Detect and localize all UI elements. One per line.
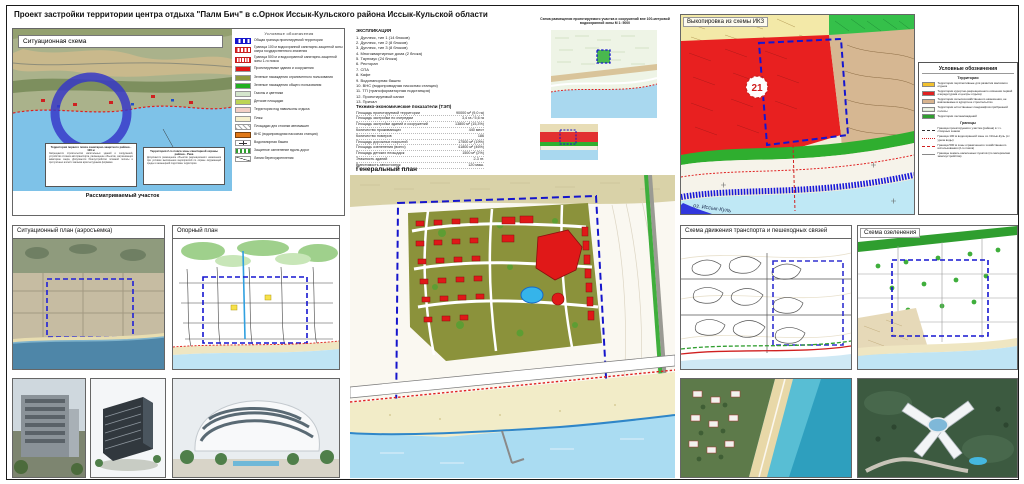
- legend-label: Газоны и цветники: [254, 92, 283, 96]
- ikz-territories-list: Территории перспективные для развития ма…: [922, 82, 1014, 120]
- tep-value: 2-3 эт.: [474, 157, 484, 162]
- ikz-border-label: Граница проектируемого участка (района) …: [938, 127, 1015, 133]
- legend-swatch: [235, 75, 251, 81]
- legend-swatch: [235, 91, 251, 97]
- ikz-territory-item: Территории сельскохозяйственного назначе…: [922, 98, 1014, 104]
- situ-legend-list: Общая граница проектируемой территорииГр…: [235, 38, 343, 162]
- ikz-border-label: Граница 100 м водоохранной зоны оз. Иссы…: [938, 135, 1015, 141]
- genplan-title: Генеральный план: [356, 166, 417, 173]
- genplan-panel: [350, 175, 675, 478]
- genplan-map: [350, 175, 675, 478]
- tep-title: Технико-экономические показатели (ТЭП): [356, 104, 484, 109]
- render-building-3d: [90, 378, 166, 478]
- drawing-sheet: Проект застройки территории центра отдых…: [0, 0, 1024, 484]
- tep-value: 41800 м² (46%): [458, 145, 484, 150]
- legend-label: Зеленые насаждения ограниченного пользов…: [254, 76, 333, 80]
- tep-value: 17500 м² (19%): [458, 140, 484, 145]
- tep-value: 120 маш.: [468, 163, 484, 168]
- tep-label: Площадь дорожных покрытий: [356, 140, 458, 145]
- tep-label: Площадь застройки по очередям: [356, 116, 462, 121]
- ikz-territory-swatch: [922, 99, 935, 104]
- legend-item: Пляж: [235, 116, 343, 122]
- ikz-territory-swatch: [922, 107, 935, 112]
- legend-swatch: [235, 156, 251, 162]
- tep-label: Количество номеров: [356, 134, 478, 139]
- legend-swatch: [235, 116, 251, 122]
- tep-block: Технико-экономические показатели (ТЭП) П…: [356, 104, 484, 169]
- ikz-map: 21 оз. Иссык-Куль: [681, 15, 914, 214]
- ikz-territories-subtitle: Территории: [922, 76, 1014, 80]
- legend-item: Детские площадки: [235, 99, 343, 105]
- placement-scheme-title: Схема размещения проектируемого участка …: [535, 18, 675, 26]
- ikz-border-item: Граница 100 м водоохранной зоны оз. Иссы…: [922, 135, 1014, 141]
- oporny-plan-title: Опорный план: [173, 226, 339, 239]
- tep-value: 1500 м² (2%): [462, 151, 484, 156]
- note-body: Допускается размещение объектов рекреаци…: [147, 157, 221, 166]
- legend-swatch: [235, 38, 251, 44]
- ikz-territory-swatch: [922, 114, 935, 119]
- ikz-border-item: Граница 500 м зоны ограниченного хозяйст…: [922, 144, 1014, 150]
- legend-item: Граница 500 м и водоохранной санитарно-з…: [235, 56, 343, 64]
- legend-item: Граница 100 м водоохранной санитарно-защ…: [235, 46, 343, 54]
- ikz-panel: Выкопировка из схемы ИКЗ: [680, 14, 915, 215]
- legend-item: Общая граница проектируемой территории: [235, 38, 343, 44]
- ikz-territory-item: Территории перспективные для развития ма…: [922, 82, 1014, 88]
- legend-item: ВНС (водопроводная насосная станция): [235, 132, 343, 138]
- site-caption: Рассматриваемый участок: [13, 193, 232, 199]
- transport-scheme-panel: Схема движения транспорта и пешеходных с…: [680, 225, 852, 370]
- legend-item: Защитное озеленение вдоль дорог: [235, 148, 343, 154]
- ikz-territory-label: Территории курортно-рекреационного освое…: [938, 90, 1015, 96]
- legend-swatch: [235, 66, 251, 72]
- ikz-border-swatch: [922, 146, 935, 147]
- legend-label: Площадки для стоянки автомашин: [254, 125, 309, 129]
- facade-photo-image: [13, 379, 85, 477]
- ikz-territory-item: Территории лесонасаждений: [922, 114, 1014, 119]
- ikz-border-swatch: [922, 138, 935, 139]
- legend-label: Территория под павильоны отдыха: [254, 108, 309, 112]
- tep-value: 90000 м² (9,0 га): [456, 111, 484, 116]
- oporny-plan-panel: Опорный план: [172, 225, 340, 370]
- tep-value: 3,4 га / 5,6 га: [462, 116, 484, 121]
- ikz-border-item: Граница проектируемого участка (района) …: [922, 127, 1014, 133]
- aero-plan-title: Ситуационный план (аэросъемка): [13, 226, 164, 239]
- placement-scheme-map: [551, 30, 657, 118]
- ikz-territory-item: Территории естественных ландшафтов прибр…: [922, 106, 1014, 112]
- greenery-scheme-title: Схема озеленения: [860, 228, 920, 238]
- tep-value: 13800 м² (15,3%): [455, 122, 484, 127]
- render-aerial-resort: [680, 378, 852, 478]
- situational-scheme-panel: Ситуационная схема Территория первого по…: [12, 28, 345, 216]
- legend-swatch: [235, 83, 251, 89]
- aero-plan-panel: Ситуационный план (аэросъемка): [12, 225, 165, 370]
- ikz-territory-swatch: [922, 82, 935, 87]
- ikz-title: Выкопировка из схемы ИКЗ: [683, 17, 768, 27]
- legend-label: Водонапорная башня: [254, 141, 288, 145]
- legend-swatch: [235, 148, 251, 154]
- legend-item: Линия берегоукрепления: [235, 156, 343, 162]
- ikz-territory-label: Территории естественных ландшафтов прибр…: [938, 106, 1015, 112]
- legend-swatch: [235, 99, 251, 105]
- explication-block: ЭКСПЛИКАЦИЯ 1. Дуплекс, тип 1 (14 блоков…: [356, 28, 474, 105]
- ikz-border-label: Граница 500 м зоны ограниченного хозяйст…: [938, 144, 1015, 150]
- legend-label: ВНС (водопроводная насосная станция): [254, 133, 318, 137]
- legend-swatch: [235, 47, 251, 53]
- ikz-border-swatch: [922, 154, 935, 155]
- aerial-hotel-image: [858, 379, 1017, 477]
- greenery-scheme-map: [858, 226, 1017, 369]
- legend-label: Зеленые насаждения общего пользования: [254, 84, 321, 88]
- greenery-scheme-panel: Схема озеленения: [857, 225, 1018, 370]
- ikz-territory-label: Территории перспективные для развития ма…: [938, 82, 1015, 88]
- oporny-plan-map: [173, 239, 339, 369]
- legend-label: Общая граница проектируемой территории: [254, 39, 323, 43]
- tep-label: Площадь детских площадок: [356, 151, 462, 156]
- aerial-resort-image: [681, 379, 851, 477]
- tep-label: Площадь проектируемой территории: [356, 111, 456, 116]
- situational-legend: Условные обозначения Общая граница проек…: [235, 31, 343, 165]
- ikz-territory-label: Территории сельскохозяйственного назначе…: [938, 98, 1015, 104]
- legend-swatch: [235, 107, 251, 113]
- transport-scheme-title: Схема движения транспорта и пешеходных с…: [681, 226, 851, 239]
- tep-list: Площадь проектируемой территории90000 м²…: [356, 111, 484, 169]
- tep-value: 440 мест: [469, 128, 484, 133]
- ikz-borders-subtitle: Границы: [922, 121, 1014, 125]
- ikz-territory-label: Территории лесонасаждений: [938, 115, 977, 118]
- ikz-border-label: Границы земель населенных пунктов (по ма…: [938, 152, 1015, 158]
- render-curved-building: [172, 378, 340, 478]
- legend-item: Проектируемые здания и сооружения: [235, 66, 343, 72]
- transport-scheme-map: [681, 239, 851, 369]
- tep-label: Количество проживающих: [356, 128, 469, 133]
- legend-item: Зеленые насаждения ограниченного пользов…: [235, 75, 343, 81]
- ikz-border-swatch: [922, 130, 935, 131]
- placement-scheme-panel: Схема размещения проектируемого участка …: [535, 18, 675, 166]
- placement-scheme-inset: [540, 124, 598, 160]
- legend-label: Граница 500 м и водоохранной санитарно-з…: [254, 56, 343, 64]
- legend-label: Детские площадки: [254, 100, 283, 104]
- ikz-territory-swatch: [922, 91, 935, 96]
- sanitary-zone-note-1: Территория первого пояса санитарно-защит…: [45, 143, 137, 187]
- note-body: Запрещается строительство капитальных зд…: [49, 153, 133, 165]
- building-3d-image: [91, 379, 165, 477]
- legend-item: Газоны и цветники: [235, 91, 343, 97]
- legend-item: Зеленые насаждения общего пользования: [235, 83, 343, 89]
- ikz-badge: 21: [751, 83, 763, 94]
- legend-swatch: [235, 124, 251, 130]
- legend-swatch: [235, 140, 251, 146]
- legend-label: Проектируемые здания и сооружения: [254, 67, 314, 71]
- ikz-border-item: Границы земель населенных пунктов (по ма…: [922, 152, 1014, 158]
- legend-item: Территория под павильоны отдыха: [235, 107, 343, 113]
- legend-label: Линия берегоукрепления: [254, 157, 294, 161]
- sanitary-zone-note-2: Территория 2-го пояса зоны санитарной ох…: [143, 147, 225, 185]
- legend-item: Водонапорная башня: [235, 140, 343, 146]
- ikz-legend-title: Условные обозначения: [922, 66, 1014, 74]
- explication-list: 1. Дуплекс, тип 1 (14 блоков)2. Дуплекс,…: [356, 35, 474, 105]
- legend-label: Граница 100 м водоохранной санитарно-защ…: [254, 46, 343, 54]
- page-title: Проект застройки территории центра отдых…: [14, 10, 488, 19]
- explication-title: ЭКСПЛИКАЦИЯ: [356, 28, 474, 33]
- render-photo-facade: [12, 378, 86, 478]
- tep-label: Этажность зданий: [356, 157, 474, 162]
- tep-value: 186: [478, 134, 484, 139]
- legend-swatch: [235, 132, 251, 138]
- legend-title: Условные обозначения: [235, 31, 343, 36]
- ikz-legend-panel: Условные обозначения Территории Территор…: [918, 62, 1018, 215]
- tep-label: Площадь озеленения (всего): [356, 145, 458, 150]
- tep-label: Площадь застройки зданий и сооружений: [356, 122, 455, 127]
- legend-swatch: [235, 57, 251, 63]
- legend-label: Защитное озеленение вдоль дорог: [254, 149, 309, 153]
- curved-building-image: [173, 379, 339, 477]
- ikz-borders-list: Граница проектируемого участка (района) …: [922, 127, 1014, 158]
- legend-item: Площадки для стоянки автомашин: [235, 124, 343, 130]
- render-aerial-hotel: [857, 378, 1018, 478]
- aero-plan-map: [13, 239, 164, 369]
- legend-label: Пляж: [254, 117, 263, 121]
- ikz-territory-item: Территории курортно-рекреационного освое…: [922, 90, 1014, 96]
- situational-scheme-title: Ситуационная схема: [18, 35, 223, 48]
